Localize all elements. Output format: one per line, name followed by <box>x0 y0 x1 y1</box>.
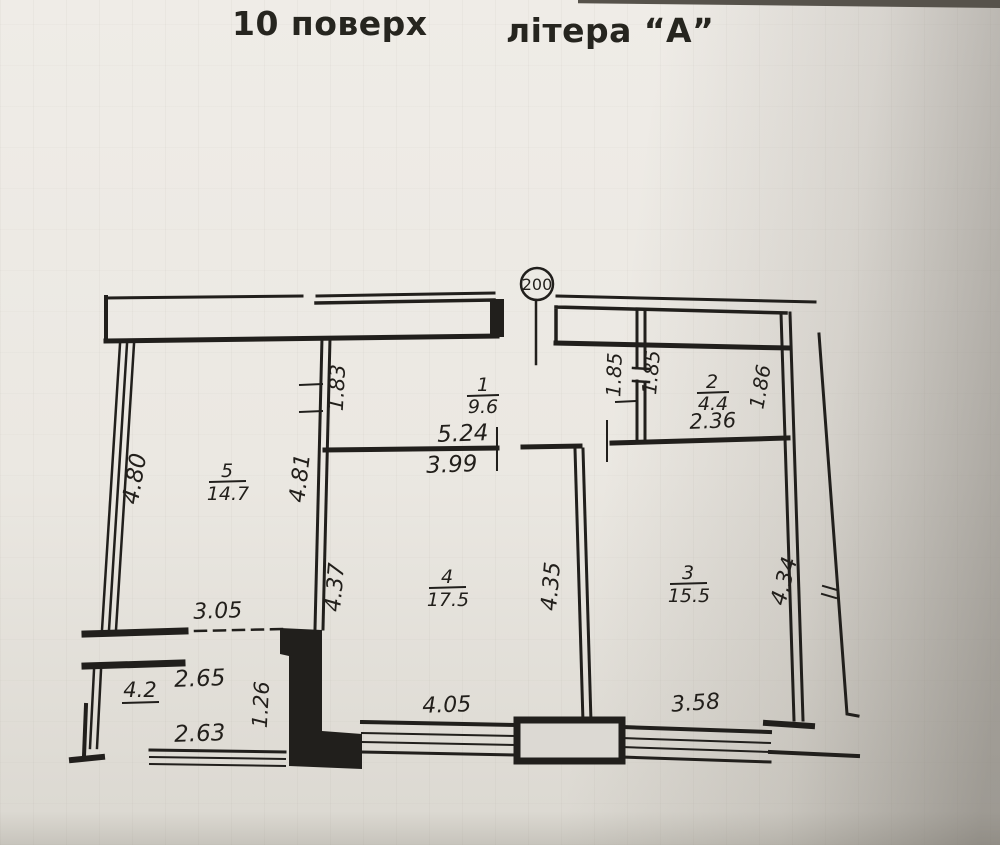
top-wall-left <box>106 336 497 341</box>
dim-room3-window: 3.58 <box>670 689 721 717</box>
room3-window-4 <box>622 757 770 762</box>
bottom-right-line <box>770 752 858 756</box>
top-wall-hollow-left <box>316 300 494 336</box>
corner-pillar <box>280 628 362 769</box>
room3-window-3 <box>622 747 770 752</box>
balcony-left-foot <box>72 757 102 760</box>
room4-window-2 <box>362 733 516 736</box>
dim-room5-left-height: 4.80 <box>118 451 152 506</box>
balcony-left-post <box>84 705 86 756</box>
room5-door-tick-top <box>300 384 322 385</box>
room5-hall-wall-a <box>315 338 322 629</box>
balcony-window-3 <box>150 764 285 766</box>
room-1-label: 1 9.6 <box>468 374 498 418</box>
dim-room3-right-height: 4.34 <box>766 554 803 608</box>
dim-room2-width: 2.36 <box>689 408 737 434</box>
dimension-labels: 1.83 5.24 3.99 1.85 1.85 2.36 1.86 4.80 … <box>118 349 803 748</box>
top-wall-hollow-right <box>556 307 786 343</box>
room-4-label: 4 17.5 <box>427 566 469 611</box>
room3-window-2 <box>622 738 770 743</box>
balcony-label: 4.2 <box>123 678 158 703</box>
top-exterior-line-right <box>557 296 815 302</box>
hall-bottom-wall-left <box>325 448 497 450</box>
room3-window-1 <box>622 727 770 732</box>
top-exterior-line-left <box>106 296 302 298</box>
dim-room4-window: 4.05 <box>422 692 472 719</box>
balcony-window-2 <box>150 757 285 759</box>
balcony-window-1 <box>150 750 285 752</box>
hall-bottom-wall-mid <box>523 446 580 447</box>
balcony-area: 4.2 <box>123 678 156 702</box>
room-5-area: 14.7 <box>207 483 249 505</box>
dim-hall-width-bottom: 3.99 <box>426 451 478 479</box>
dim-balcony-opening: 3.05 <box>193 598 243 625</box>
room-1-number: 1 <box>477 374 489 396</box>
dim-room2-door-right: 1.85 <box>637 349 665 395</box>
room-3-fraction-line <box>671 583 706 584</box>
room1-room2-tick <box>616 401 637 402</box>
room5-bottom-wall <box>85 631 185 634</box>
bottom-center-pier <box>517 720 622 761</box>
room-3-number: 3 <box>682 562 694 584</box>
room-5-fraction-line <box>210 481 245 482</box>
dim-room4-right-height: 4.35 <box>537 561 566 612</box>
room-4-fraction-line <box>430 587 465 588</box>
balcony-left-line-1 <box>90 670 94 748</box>
room-5-label: 5 14.7 <box>207 460 249 505</box>
dim-room2-depth: 1.86 <box>744 363 775 411</box>
room4-window-3 <box>362 742 516 745</box>
room-1-area: 9.6 <box>468 396 498 418</box>
room-4-number: 4 <box>441 566 453 588</box>
balcony-left-line-2 <box>97 670 101 748</box>
top-wall-right-inner <box>556 343 788 348</box>
dim-room2-door-left: 1.85 <box>601 352 627 397</box>
room-3-label: 3 15.5 <box>668 562 710 607</box>
room5-door-tick-bottom <box>300 411 322 412</box>
floor-plan-drawing: 200 1 9.6 2 4.4 3 15.5 4 17.5 5 14.7 <box>0 0 1000 845</box>
balcony-opening-dashed <box>195 629 284 631</box>
top-exterior-line-mid <box>317 293 494 296</box>
right-outer-ticks <box>822 586 837 598</box>
room4-window-4 <box>362 752 516 755</box>
room-3-area: 15.5 <box>668 585 710 607</box>
dim-pillar-height: 1.26 <box>248 681 274 729</box>
room-2-number: 2 <box>706 371 718 393</box>
corner-cap-right <box>766 723 812 726</box>
balcony-underline <box>123 702 158 703</box>
room-4-area: 17.5 <box>427 589 469 611</box>
dim-hall-width-top: 5.24 <box>437 420 489 448</box>
entrance-jamb-left <box>490 299 504 337</box>
room4-room3-wall-a <box>575 449 583 722</box>
dim-room4-left-height: 4.37 <box>321 562 350 613</box>
dim-room5-door: 1.83 <box>324 364 350 412</box>
right-outer-line <box>819 334 858 716</box>
dim-balcony-width-bottom: 2.63 <box>174 720 226 748</box>
room4-room3-wall-b <box>583 449 591 722</box>
axis-marker-label: 200 <box>522 275 553 294</box>
room-5-number: 5 <box>221 460 233 482</box>
room4-window-1 <box>362 722 516 725</box>
dim-room5-right-height: 4.81 <box>285 452 316 504</box>
dim-balcony-width-top: 2.65 <box>174 665 226 693</box>
balcony-top-wall <box>85 663 182 666</box>
